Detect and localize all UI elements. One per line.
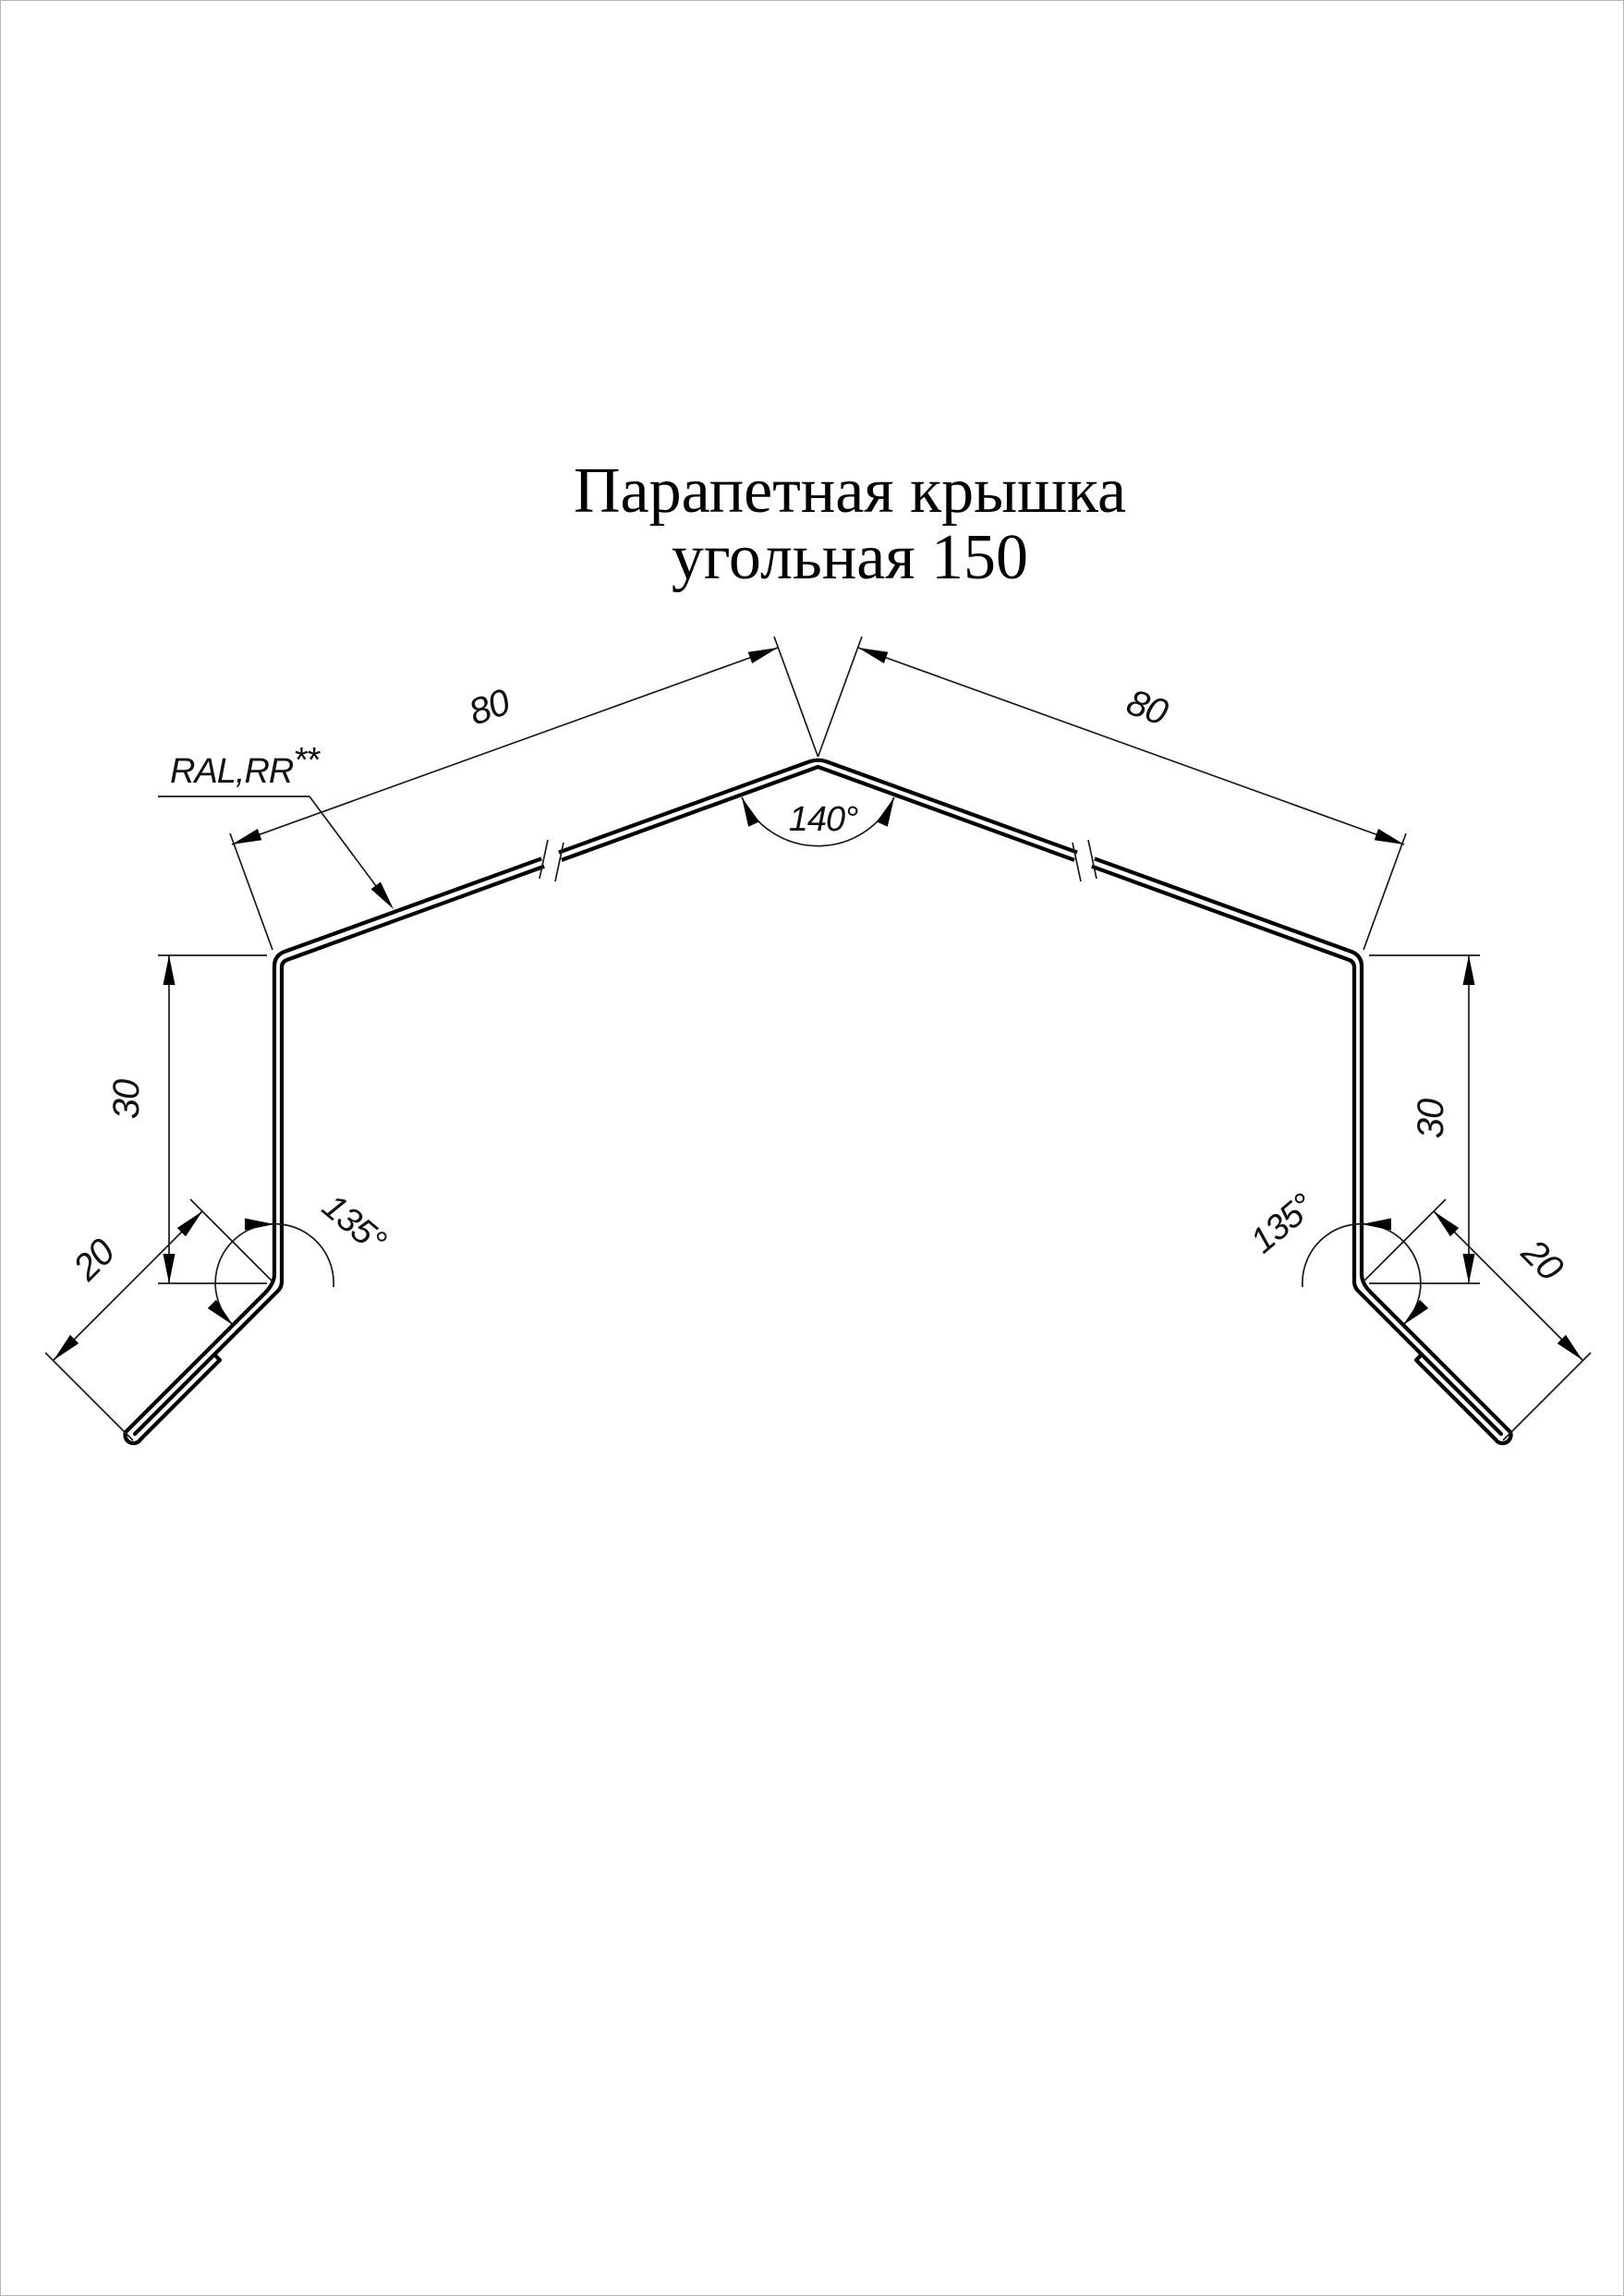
dim-corner-angle-left: 135° — [208, 1187, 394, 1325]
arrowhead — [742, 797, 759, 827]
arrowhead — [164, 1254, 176, 1283]
corner-angle-right-label: 135° — [1243, 1186, 1322, 1261]
extension-line — [774, 637, 818, 757]
arrowhead — [232, 829, 261, 844]
dimension-line — [858, 648, 1404, 844]
dim-slope-right: 80 — [818, 637, 1407, 950]
dim-slope-left: 80 — [230, 637, 818, 950]
dim-corner-angle-right: 135° — [1243, 1186, 1428, 1325]
arrowhead — [748, 648, 778, 663]
arrowhead — [245, 1219, 274, 1231]
dim-kick-left-label: 20 — [66, 1232, 123, 1289]
corner-angle-left-label: 135° — [315, 1187, 394, 1262]
arrowhead — [164, 955, 176, 985]
dim-upstand-right: 30 — [1369, 955, 1480, 1283]
drawing-title-line2: угольная 150 — [672, 522, 1028, 593]
extension-line — [1363, 833, 1406, 950]
drawing-title-line1: Парапетная крышка — [574, 456, 1126, 527]
drawing-canvas: Парапетная крышка угольная 150 80 80 — [0, 0, 1624, 2296]
apex-angle-label: 140° — [789, 800, 858, 839]
dim-slope-right-label: 80 — [1121, 682, 1173, 734]
arrowhead — [877, 797, 894, 827]
dimension-line — [54, 1211, 202, 1360]
dim-upstand-right-label: 30 — [1411, 1099, 1451, 1138]
profile-section — [125, 760, 1510, 1443]
arrowhead — [1403, 1300, 1428, 1325]
arrowhead — [1375, 829, 1404, 844]
extension-line — [818, 637, 863, 757]
parapet-cap-drawing: Парапетная крышка угольная 150 80 80 — [1, 1, 1624, 2296]
dimension-line — [1434, 1211, 1582, 1360]
profile-inner-line — [135, 767, 1501, 1434]
dim-slope-left-label: 80 — [464, 682, 515, 734]
arrowhead — [1463, 1254, 1475, 1283]
extension-line — [1503, 1353, 1591, 1440]
coating-label: RAL,RR** — [170, 741, 321, 791]
extension-line — [45, 1353, 133, 1440]
arrowhead — [208, 1300, 233, 1325]
arrowhead — [858, 648, 888, 663]
coating-callout: RAL,RR** — [158, 741, 394, 909]
extension-line — [190, 1199, 273, 1282]
extension-line — [230, 833, 273, 950]
arrowhead — [371, 882, 394, 910]
profile-outer-line — [125, 760, 1510, 1443]
dim-upstand-left-label: 30 — [106, 1079, 147, 1119]
dim-kick-right-label: 20 — [1513, 1232, 1570, 1289]
arrowhead — [1362, 1219, 1391, 1231]
arrowhead — [1463, 955, 1475, 985]
dim-apex-angle: 140° — [742, 797, 894, 846]
